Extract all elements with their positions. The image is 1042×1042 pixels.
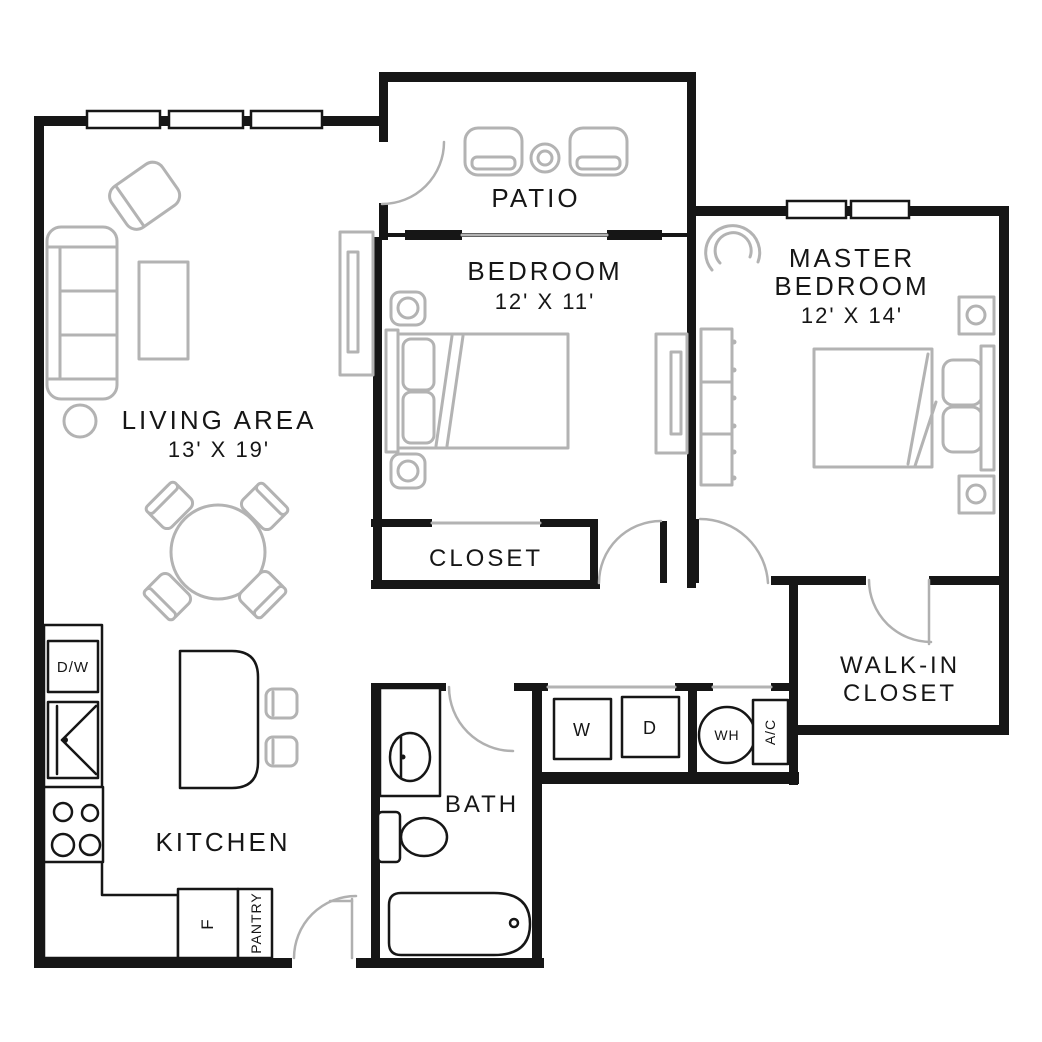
- bedroom-nightstand: [391, 292, 425, 325]
- bath-label: BATH: [445, 791, 519, 818]
- sofa: [47, 227, 117, 399]
- pantry-label: PANTRY: [248, 892, 264, 954]
- patio-chair: [570, 128, 627, 175]
- washer-label: W: [573, 720, 591, 740]
- tv-console: [340, 232, 373, 375]
- bedroom-dimensions: 12' X 11': [495, 289, 596, 314]
- window: [87, 111, 160, 128]
- master-nightstand: [959, 476, 994, 513]
- bedroom-label: BEDROOM: [467, 256, 622, 286]
- window: [251, 111, 322, 128]
- floor-plan-drawing: PATIO BEDROOM 12' X 11' MASTER BEDROOM 1…: [0, 0, 1042, 1042]
- master-bedroom-label-2: BEDROOM: [774, 271, 929, 301]
- bedroom-nightstand: [391, 454, 425, 488]
- water-heater-label: WH: [714, 727, 739, 743]
- master-bedroom-dimensions: 12' X 14': [801, 303, 903, 328]
- living-area-label: LIVING AREA: [122, 405, 317, 435]
- bar-stool: [266, 737, 297, 766]
- floor-plan-page: PATIO BEDROOM 12' X 11' MASTER BEDROOM 1…: [0, 0, 1042, 1042]
- window: [851, 201, 909, 218]
- ac-label: A/C: [762, 719, 778, 745]
- bedroom-dresser: [656, 334, 687, 453]
- master-nightstand: [959, 297, 994, 334]
- bathtub: [389, 893, 530, 955]
- kitchen-island: [180, 651, 258, 788]
- dryer-label: D: [643, 718, 657, 738]
- window: [169, 111, 243, 128]
- coffee-table: [139, 262, 188, 359]
- bar-stool: [266, 689, 297, 718]
- master-bed: [814, 346, 994, 470]
- side-table: [64, 405, 96, 437]
- closet-label: CLOSET: [429, 545, 543, 572]
- window: [787, 201, 846, 218]
- dishwasher-label: D/W: [57, 659, 89, 676]
- master-bedroom-label-1: MASTER: [789, 243, 915, 273]
- bath-vanity: [380, 688, 440, 796]
- refrigerator-label: F: [198, 918, 217, 929]
- kitchen-sink: [48, 702, 98, 778]
- master-dresser: [701, 329, 737, 485]
- living-area-dimensions: 13' X 19': [168, 437, 270, 462]
- bedroom-bed: [386, 330, 568, 452]
- patio-label: PATIO: [491, 183, 580, 213]
- patio-chair: [465, 128, 522, 175]
- stove: [44, 787, 103, 862]
- walkin-closet-label-2: CLOSET: [843, 680, 957, 707]
- kitchen-label: KITCHEN: [155, 827, 290, 857]
- walkin-closet-label-1: WALK-IN: [840, 652, 960, 679]
